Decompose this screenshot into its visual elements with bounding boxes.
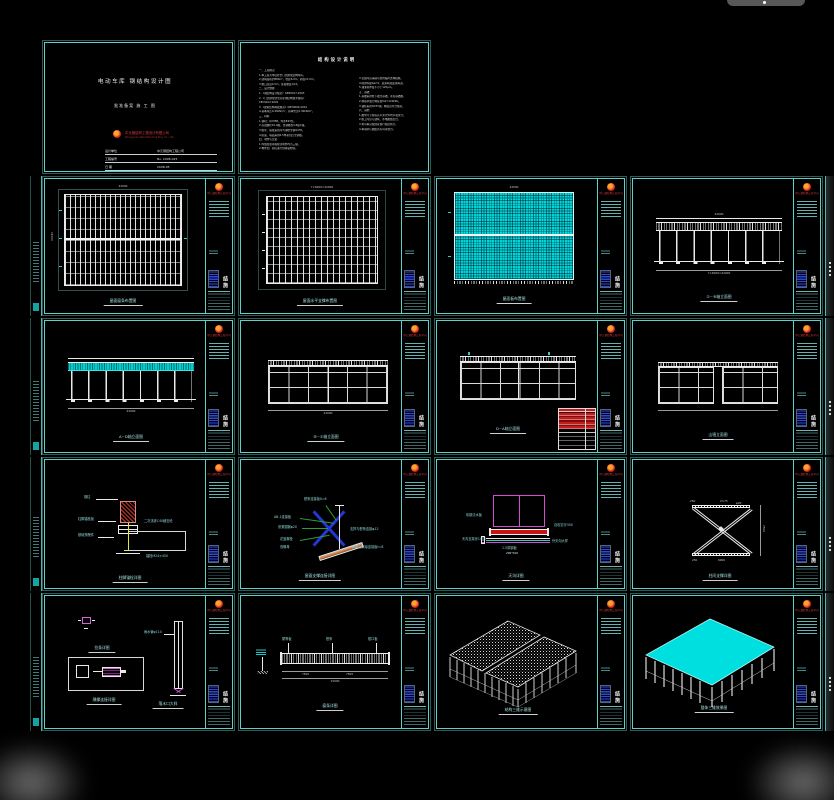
titleblock-miniplan	[797, 271, 806, 287]
label: 外天沟大样	[552, 539, 568, 543]
titleblock-rows	[404, 291, 426, 310]
titleblock-miniplan	[209, 271, 218, 287]
drawing-area: 结构三维示意图	[438, 597, 595, 727]
detail-title: 隅撑连接详图	[87, 697, 122, 705]
titleblock: 中元钢结构工程公司 结施	[597, 596, 624, 728]
center-post	[328, 366, 329, 404]
dim-top: 42000	[510, 185, 519, 189]
sheet-number: 结施	[222, 276, 229, 289]
titleblock-miniplan	[209, 686, 218, 702]
dim: 7500	[346, 672, 353, 676]
sheet-number: 结施	[418, 276, 425, 289]
titleblock: 中元钢结构工程公司 结施	[793, 321, 820, 452]
drawing-area: 整体三维效果图	[634, 597, 791, 727]
sheet-number: 结施	[418, 551, 425, 564]
drawing-area: 42000 7×6000=42000 ①~⑧轴立面图	[634, 180, 791, 312]
drawing-area: 42000 A~D轴立面图	[46, 322, 203, 451]
label: 锚栓M24×450	[146, 554, 168, 558]
leader-green	[326, 505, 337, 520]
titleblock-rows	[208, 706, 230, 725]
titleblock-mark	[601, 666, 610, 671]
titleblock-mark	[405, 249, 414, 254]
tick	[262, 268, 265, 269]
leader-green	[300, 518, 334, 523]
sheet-front-elevation: 中元钢结构工程公司 结施 42000 7×6000=42000 ①~⑧轴立面图	[630, 176, 823, 316]
leader-green	[300, 535, 330, 541]
titleblock-mark	[797, 391, 806, 396]
company-logo-icon	[803, 183, 811, 191]
dim: 15000	[331, 679, 340, 683]
drawing-title: 屋面板布置图	[497, 296, 532, 304]
titleblock-mark	[209, 391, 218, 396]
dim: 2×75	[720, 499, 728, 503]
partial-cyan-block	[33, 442, 39, 450]
drawing-title: 整体三维效果图	[695, 705, 734, 713]
tick	[448, 256, 451, 257]
drawing-area: D~A轴立面图	[438, 322, 595, 451]
label: 柱脚锚栓板	[78, 517, 94, 521]
titleblock-rows	[404, 430, 426, 449]
leader-green	[302, 528, 328, 529]
company-name: 中元钢结构工程公司	[794, 609, 820, 612]
material-schedule-table	[558, 408, 596, 450]
base-pads	[71, 400, 192, 402]
company-name: 中元钢结构工程公司	[598, 609, 624, 612]
titleblock-mark	[209, 666, 218, 671]
company-logo-icon	[607, 464, 615, 472]
company-name: 中元钢结构工程公司	[206, 334, 232, 337]
drawing-area: 42000 21000 屋面檩条布置图	[46, 180, 203, 312]
titleblock-miniplan	[209, 546, 218, 562]
cad-sheet-montage: { "titleblock": {"sheet_no": "结施", "comp…	[0, 0, 834, 800]
sheet-roof-purlin-plan: 中元钢结构工程公司 结施 42000 21000 屋面檩条布置图	[42, 176, 235, 316]
end-tab	[547, 528, 549, 536]
titleblock-miniplan	[797, 546, 806, 562]
cover-title: 电动车库 钢结构设计图	[98, 77, 172, 85]
titleblock-info	[601, 342, 621, 359]
partial-cyan-block	[33, 718, 39, 726]
text-line: 2.构件出厂前应进行预拼装检验。	[259, 147, 355, 152]
tick	[59, 238, 62, 239]
plate-square	[76, 665, 89, 678]
company-name: 中元钢结构工程公司	[794, 473, 820, 476]
label: 1.5厚钢板	[502, 546, 517, 550]
top-chord	[692, 505, 750, 508]
dim: φ20	[736, 501, 741, 505]
drawing-area: 钢柱 柱脚锚栓板 基础预埋件 二次浇灌C40细石砼 锚栓M24×450 柱脚锚栓…	[46, 461, 203, 587]
company-logo-icon	[803, 325, 811, 333]
leader	[98, 537, 114, 538]
sheet-3d-render: 中元钢结构工程公司 结施 整体三维效果图	[630, 593, 823, 731]
sheet-column-base-detail: 中元钢结构工程公司 结施 钢柱 柱脚锚栓板 基础预埋件 二次浇灌C40细石砼 锚…	[42, 457, 235, 591]
company-name: 中元钢结构工程公司	[402, 609, 428, 612]
company-logo-icon	[411, 183, 419, 191]
sheet-3d-wireframe: 中元钢结构工程公司 结施	[434, 593, 627, 731]
titleblock-info	[797, 617, 817, 634]
titleblock: 中元钢结构工程公司 结施	[793, 179, 820, 313]
company-logo-icon	[215, 183, 223, 191]
titleblock-miniplan	[601, 686, 610, 702]
drawing-title: 柱脚锚栓详图	[113, 575, 148, 583]
partial-sheet-left	[30, 176, 42, 316]
titleblock-miniplan	[405, 271, 414, 287]
titleblock-info	[601, 481, 621, 498]
dim-line-vertical	[760, 505, 761, 556]
titleblock-info	[209, 617, 229, 634]
sheet-number: 结施	[810, 551, 817, 564]
notes-right-column: 3.安装时应采取可靠的临时支撑措施。4.除锈等级Sa2.5，底漆两道面漆两道。5…	[359, 77, 427, 132]
company-logo-icon	[803, 600, 811, 608]
titleblock-miniplan	[797, 410, 806, 426]
tick	[448, 212, 451, 213]
drawing-area: 檩条连接板δ=6 AB-1连接板 张紧圆钢φ20 花篮螺栓 双螺母 支撑与檩条连…	[242, 461, 399, 587]
titleblock: 中元钢结构工程公司 结施	[401, 321, 428, 452]
titleblock-mark	[405, 666, 414, 671]
company-logo-icon	[607, 600, 615, 608]
cover-drawing-area: 电动车库 钢结构设计图 批准备案 施 工 图 中元钢结构工程设计有限公司 Zho…	[47, 45, 230, 169]
purlin-member	[339, 505, 340, 549]
sheet-side-elevation-d: 中元钢结构工程公司 结施 D~A轴立面图	[434, 318, 627, 455]
partial-sheet-left	[30, 457, 42, 591]
titleblock: 中元钢结构工程公司 结施	[401, 460, 428, 588]
cover-subtitle: 批准备案 施 工 图	[114, 103, 156, 109]
tick	[548, 352, 550, 355]
sheet-number: 结施	[614, 415, 621, 428]
titleblock-miniplan	[405, 410, 414, 426]
dim-bottom: 42000	[324, 411, 333, 415]
drawing-title: ①~⑧轴立面图	[700, 294, 737, 302]
titleblock-mark	[405, 530, 414, 535]
notes-title: 结构设计说明	[318, 57, 356, 63]
sheet-number: 结施	[810, 415, 817, 428]
dim-top: 42000	[715, 212, 724, 216]
cover-row-label: 日 期	[105, 165, 112, 169]
company-name: 中元钢结构工程公司	[206, 192, 232, 195]
label: 天沟支架@1000	[462, 537, 486, 541]
eave-line	[68, 358, 194, 359]
dim: 2500	[762, 525, 766, 532]
label: 支撑与檩条连接φ12	[350, 527, 378, 531]
sheet-rear-elevation: 中元钢结构工程公司 结施 42000 ⑧~①轴立面图	[238, 318, 431, 455]
base-pads	[659, 262, 780, 264]
tick	[92, 620, 95, 621]
table-column-divider	[585, 409, 586, 449]
drawing-area: 山墙立面图	[634, 322, 791, 451]
titleblock-info	[405, 342, 425, 359]
corner-vignette-right	[738, 735, 834, 800]
drawing-title: 檩条详图	[316, 703, 343, 711]
partial-titleblock-lines	[33, 515, 39, 557]
tick	[262, 214, 265, 215]
titleblock-info	[797, 342, 817, 359]
titleblock: 中元钢结构工程公司 结施	[205, 321, 232, 452]
drawing-title: A~D轴立面图	[113, 434, 149, 442]
titleblock-rows	[208, 430, 230, 449]
dim-line	[658, 410, 778, 411]
leader	[98, 521, 116, 522]
titleblock: 中元钢结构工程公司 结施	[205, 460, 232, 588]
titleblock-info	[209, 200, 229, 217]
cover-row-value: 中元钢结构工程公司	[157, 149, 184, 153]
titleblock-rows	[600, 706, 622, 725]
titleblock: 中元钢结构工程公司 结施	[205, 179, 232, 313]
layer-line-cyan	[486, 540, 550, 541]
company-logo-icon	[411, 464, 419, 472]
label: 张紧圆钢φ20	[278, 525, 297, 529]
titleblock-info	[209, 481, 229, 498]
viewer-toolbar-tab[interactable]	[727, 0, 805, 6]
dim-bottom: 42000	[127, 409, 136, 413]
sheet-side-elevation-a: 中元钢结构工程公司 结施 42000 A~D轴立面图	[42, 318, 235, 455]
partial-text-dashes	[829, 401, 831, 415]
partial-sheet-left	[30, 593, 42, 731]
company-name: 中元钢结构工程公司	[206, 473, 232, 476]
drawing-area: 250 2×75 φ20 2500 250 6000 柱间支撑详图	[634, 461, 791, 587]
label: 檩条连接板δ=6	[304, 497, 327, 501]
columns	[659, 231, 780, 261]
label: 自攻钉@300	[554, 523, 573, 527]
tie-rod-part	[82, 617, 91, 624]
tick	[184, 238, 187, 239]
label: 二次浇灌C40细石砼	[144, 519, 173, 523]
tick	[59, 266, 62, 267]
titleblock-miniplan	[601, 546, 610, 562]
ridge-band	[64, 238, 182, 240]
dim: 7500	[302, 672, 309, 676]
leader-tick	[288, 643, 289, 653]
titleblock-rows	[208, 566, 230, 585]
mini-note-block	[256, 649, 266, 655]
sheet-column-bracing-detail: 中元钢结构工程公司 结施 250 2×75 φ20 2500 250 6000 …	[630, 457, 823, 591]
company-logo-icon	[215, 325, 223, 333]
titleblock-info	[601, 200, 621, 217]
wall-panel-grid-left	[658, 367, 714, 404]
dim: 250	[692, 558, 697, 562]
eave-line	[656, 218, 782, 219]
dim-bottom: 7×6000=42000	[708, 271, 730, 275]
label: 基础预埋件	[78, 533, 94, 537]
leader	[164, 634, 174, 635]
bottom-chord	[692, 553, 750, 556]
titleblock-miniplan	[209, 410, 218, 426]
center-post	[518, 362, 519, 400]
leader-tick	[332, 643, 333, 653]
partial-text-dashes	[829, 537, 831, 551]
titleblock-rows	[796, 706, 818, 725]
drawing-title: 柱间支撑详图	[703, 573, 738, 581]
tick	[84, 628, 88, 629]
notes-left-column: 一、工程概况1.本工程为单层轻型门式刚架结构车库。2.建筑面积约880m²，柱距…	[259, 69, 355, 152]
dim-line	[282, 671, 388, 672]
sheet-number: 结施	[614, 276, 621, 289]
titleblock-rows	[796, 291, 818, 310]
cover-row-value: 2008-05	[157, 165, 170, 169]
notes-drawing-area: 结构设计说明 一、工程概况1.本工程为单层轻型门式刚架结构车库。2.建筑面积约8…	[243, 45, 426, 169]
drawing-title: D~A轴立面图	[490, 426, 526, 434]
partial-sheet-right	[825, 457, 834, 591]
partial-titleblock-lines	[33, 240, 39, 282]
titleblock-info	[797, 200, 817, 217]
company-name: 中元钢结构工程公司	[598, 334, 624, 337]
company-logo-icon	[113, 130, 121, 138]
titleblock-info	[405, 200, 425, 217]
company-logo-icon	[215, 600, 223, 608]
label: 屋脊板	[282, 637, 292, 641]
edge-ticks	[454, 281, 574, 284]
toolbar-dot-icon	[763, 1, 766, 4]
mini-base-hatch	[257, 671, 268, 674]
drawing-title: 山墙立面图	[703, 432, 734, 440]
base-flange	[116, 553, 140, 554]
titleblock: 中元钢结构工程公司 结施	[401, 596, 428, 728]
partial-text-dashes	[829, 677, 831, 691]
partial-cyan-block	[33, 303, 39, 311]
titleblock-rows	[404, 566, 426, 585]
drawing-title: ⑧~①轴立面图	[307, 434, 344, 442]
cover-row-value: No. 2008-025	[157, 157, 177, 161]
titleblock: 中元钢结构工程公司 结施	[597, 179, 624, 313]
titleblock-mark	[797, 249, 806, 254]
render-axonometric	[634, 597, 790, 715]
company-name: 中元钢结构工程公司	[402, 473, 428, 476]
partial-text-dashes	[829, 262, 831, 276]
titleblock-info	[405, 617, 425, 634]
corner-vignette-left	[0, 735, 96, 800]
company-name: 中元钢结构工程公司	[794, 192, 820, 195]
column-hatch	[120, 501, 136, 523]
purlin-top-tick	[335, 505, 344, 506]
drawing-area: 拉条详图 隅撑连接详图 雨水管φ110 落水口大样	[46, 597, 203, 727]
cover-company: 中元钢结构工程设计有限公司	[125, 130, 169, 135]
titleblock-miniplan	[405, 546, 414, 562]
label: AB-1连接板	[274, 515, 291, 519]
drawing-title: 屋面檩条布置图	[104, 298, 143, 306]
side-tab	[121, 670, 126, 673]
dim: 200*100	[506, 551, 518, 555]
company-name: 中元钢结构工程公司	[402, 334, 428, 337]
sheet-brace-connection-detail: 中元钢结构工程公司 结施 檩条连接板δ=6 AB-1连接板 张紧圆钢φ20 花篮…	[238, 457, 431, 591]
roof-band-cyan	[68, 362, 194, 371]
partial-titleblock-lines	[33, 379, 39, 421]
sheet-number: 结施	[614, 551, 621, 564]
titleblock-info	[209, 342, 229, 359]
dim-top: 7×6000=42000	[311, 185, 333, 189]
detail-title: 落水口大样	[153, 701, 184, 709]
downspout-line	[178, 621, 179, 689]
dim: 6000	[718, 558, 725, 562]
titleblock: 中元钢结构工程公司 结施	[793, 596, 820, 728]
layer-line-magenta	[486, 542, 550, 543]
titleblock-mark	[601, 530, 610, 535]
dim-left: 21000	[50, 232, 54, 241]
sheet-notes: 结构设计说明 一、工程概况1.本工程为单层轻型门式刚架结构车库。2.建筑面积约8…	[238, 40, 431, 174]
titleblock-miniplan	[601, 410, 610, 426]
angle-hatch-part	[102, 667, 121, 677]
cover-company-en: Zhongyuan Steel Structure Eng. Co., Ltd.	[125, 136, 174, 139]
sheet-number: 结施	[810, 691, 817, 704]
titleblock-rows	[208, 291, 230, 310]
partial-sheet-right	[825, 593, 834, 731]
titleblock: 中元钢结构工程公司 结施	[205, 596, 232, 728]
ridge-band	[454, 234, 574, 236]
sheet-roof-bracing-plan: 中元钢结构工程公司 结施 7×6000=42000 屋面水平支撑布置图	[238, 176, 431, 316]
drawing-area: 7×6000=42000 屋面水平支撑布置图	[242, 180, 399, 312]
titleblock-rows	[404, 706, 426, 725]
label: 双螺母	[280, 545, 290, 549]
sheet-number: 结施	[222, 415, 229, 428]
company-logo-icon	[411, 600, 419, 608]
titleblock-miniplan	[405, 686, 414, 702]
titleblock-mark	[405, 391, 414, 396]
titleblock: 中元钢结构工程公司 结施	[401, 179, 428, 313]
label: 彩钢泛水板	[466, 513, 482, 517]
tick	[468, 352, 470, 355]
partial-sheet-right	[825, 318, 834, 455]
frame-divider	[519, 495, 520, 527]
drawing-area: 彩钢泛水板 天沟支架@1000 自攻钉@300 外天沟大样 1.5厚钢板 200…	[438, 461, 595, 587]
cover-row: 日 期 2008-05	[105, 164, 217, 171]
drawing-area: 42000 屋面板布置图	[438, 180, 595, 312]
tick	[262, 232, 265, 233]
titleblock-miniplan	[601, 271, 610, 287]
company-name: 中元钢结构工程公司	[402, 192, 428, 195]
sheet-gable-elevation: 中元钢结构工程公司 结施 山墙立面图	[630, 318, 823, 455]
gutter-red-beam	[491, 529, 547, 535]
label: 檩条	[326, 637, 332, 641]
company-name: 中元钢结构工程公司	[598, 473, 624, 476]
drawing-title: 结构三维示意图	[499, 707, 538, 715]
titleblock-rows	[796, 430, 818, 449]
drawing-area: 屋脊板 檩条 檐口板 7500 7500 15000 檩条详图	[242, 597, 399, 727]
cover-row: 设计单位 中元钢结构工程公司	[105, 148, 217, 155]
cover-row: 工程编号 No. 2008-025	[105, 156, 217, 163]
titleblock: 中元钢结构工程公司 结施	[597, 321, 624, 452]
drawing-area: 42000 ⑧~①轴立面图	[242, 322, 399, 451]
partial-cyan-block	[33, 578, 39, 586]
drawing-title: 屋面水平支撑布置图	[297, 298, 343, 306]
titleblock-mark	[209, 249, 218, 254]
partial-sheet-right	[825, 176, 834, 316]
cover-row-label: 设计单位	[105, 149, 117, 153]
titleblock-info	[601, 617, 621, 634]
label: 钢柱	[84, 495, 90, 499]
tick	[262, 250, 265, 251]
foundation-outline	[128, 531, 186, 551]
sheet-number: 结施	[222, 551, 229, 564]
mini-post	[262, 657, 263, 671]
partial-sheet-left	[30, 318, 42, 455]
titleblock-rows	[796, 566, 818, 585]
titleblock-rows	[600, 430, 622, 449]
sheet-number: 结施	[222, 691, 229, 704]
roof-bracing-grid	[266, 196, 378, 284]
partial-titleblock-lines	[33, 655, 39, 697]
drawing-title: 天沟详图	[502, 573, 529, 581]
titleblock-miniplan	[797, 686, 806, 702]
titleblock-mark	[797, 666, 806, 671]
titleblock-rows	[600, 566, 622, 585]
connector-line	[93, 671, 102, 672]
label: 斜梁上翼缘连接板t=8	[352, 545, 383, 549]
company-logo-icon	[215, 464, 223, 472]
titleblock-mark	[797, 530, 806, 535]
titleblock: 中元钢结构工程公司 结施	[597, 460, 624, 588]
wall-panel-grid-right	[722, 367, 778, 404]
company-name: 中元钢结构工程公司	[794, 334, 820, 337]
company-logo-icon	[411, 325, 419, 333]
end-plate	[280, 652, 282, 665]
company-logo-icon	[803, 464, 811, 472]
